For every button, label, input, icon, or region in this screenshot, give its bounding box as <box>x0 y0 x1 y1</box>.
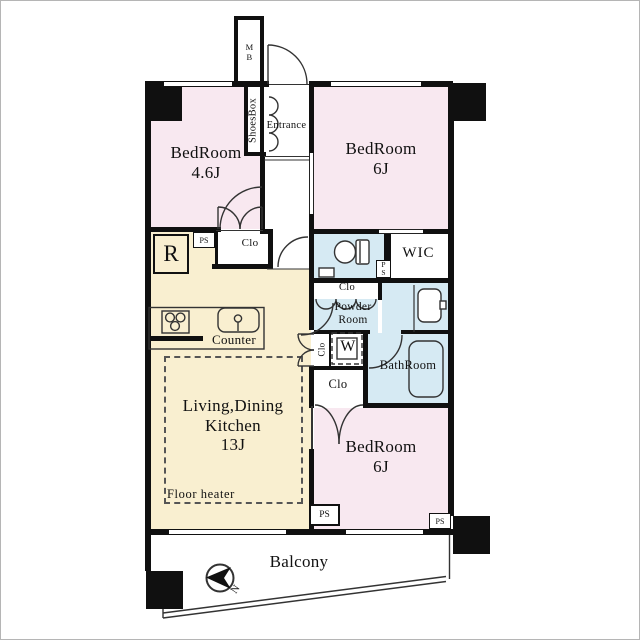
room-label-bedroom6-top: BedRoom 6J <box>319 139 443 178</box>
wall-segment <box>260 156 265 234</box>
room-label-bedroom6-bottom: BedRoom 6J <box>319 437 443 476</box>
room-size: 13J <box>159 435 307 455</box>
window <box>169 529 286 535</box>
wall-segment <box>363 333 368 408</box>
wall-segment <box>384 234 391 262</box>
wall-segment <box>145 84 151 571</box>
room-name: Living,Dining <box>159 396 307 416</box>
balcony-label: Balcony <box>249 552 349 572</box>
ps-label: PS <box>200 236 209 245</box>
wall-segment <box>448 84 454 516</box>
room-label-ldk: Living,Dining Kitchen 13J <box>159 396 307 455</box>
refrigerator-box: R <box>153 234 189 274</box>
wall-segment <box>260 16 264 87</box>
washer-label: W <box>334 338 362 356</box>
room-toilet <box>314 234 384 278</box>
ps-box: PS <box>429 513 451 529</box>
wic-label: WIC <box>391 245 446 262</box>
wall-segment <box>378 283 382 300</box>
room-name: BedRoom <box>153 143 259 163</box>
doorway-line <box>311 406 313 449</box>
room-size: 6J <box>319 457 443 477</box>
closet-label: Clo <box>323 282 371 294</box>
pillar <box>453 516 490 554</box>
refrigerator-label: R <box>163 241 178 267</box>
ps-label: PS <box>319 510 330 520</box>
sliding-door <box>309 153 314 214</box>
window <box>164 81 232 87</box>
pillar <box>453 83 486 121</box>
closet-label: Clo <box>229 237 271 250</box>
closet-label: Clo <box>317 333 328 367</box>
pillar <box>146 571 183 609</box>
floor-plan: PS PS PS PS R <box>0 0 640 640</box>
balcony-edge <box>163 535 450 618</box>
entrance-label: Entrance <box>263 120 310 132</box>
compass-icon <box>206 565 234 592</box>
sliding-door <box>379 229 423 234</box>
room-size: 4.6J <box>153 163 259 183</box>
ps-box: PS <box>309 504 340 526</box>
wall-segment <box>215 229 218 266</box>
counter-label: Counter <box>208 333 260 348</box>
wall-segment <box>309 366 366 370</box>
room-size: 6J <box>319 159 443 179</box>
wall-segment <box>329 334 331 366</box>
bathroom-label: BathRoom <box>370 358 446 372</box>
door-arc-entrance <box>268 45 309 85</box>
wall-segment <box>364 403 448 408</box>
meter-box-label: MB <box>244 43 255 62</box>
wall-segment <box>419 81 453 87</box>
room-name: BedRoom <box>319 139 443 159</box>
ps-box: PS <box>376 260 391 278</box>
closet-label: Clo <box>313 377 363 391</box>
room-name: Kitchen <box>159 416 307 436</box>
ps-label: PS <box>436 517 445 526</box>
room-label-bedroom46: BedRoom 4.6J <box>153 143 259 182</box>
shoesbox-label: ShoesBox <box>248 86 261 156</box>
ps-box: PS <box>193 232 215 248</box>
wall-segment <box>234 16 238 87</box>
ps-label: PS <box>380 261 388 278</box>
window <box>331 81 421 87</box>
room-name: BedRoom <box>319 437 443 457</box>
north-label: N <box>229 583 243 596</box>
kitchen-half-wall <box>149 336 203 341</box>
powder-room-label: Powder Room <box>321 301 385 327</box>
room-powder-right <box>382 283 448 333</box>
floor-heater-label: Floor heater <box>167 487 235 501</box>
wall-segment <box>309 84 314 153</box>
wall-segment <box>401 330 448 334</box>
wall-segment <box>212 264 273 269</box>
pillar <box>145 84 182 121</box>
window <box>346 529 423 535</box>
